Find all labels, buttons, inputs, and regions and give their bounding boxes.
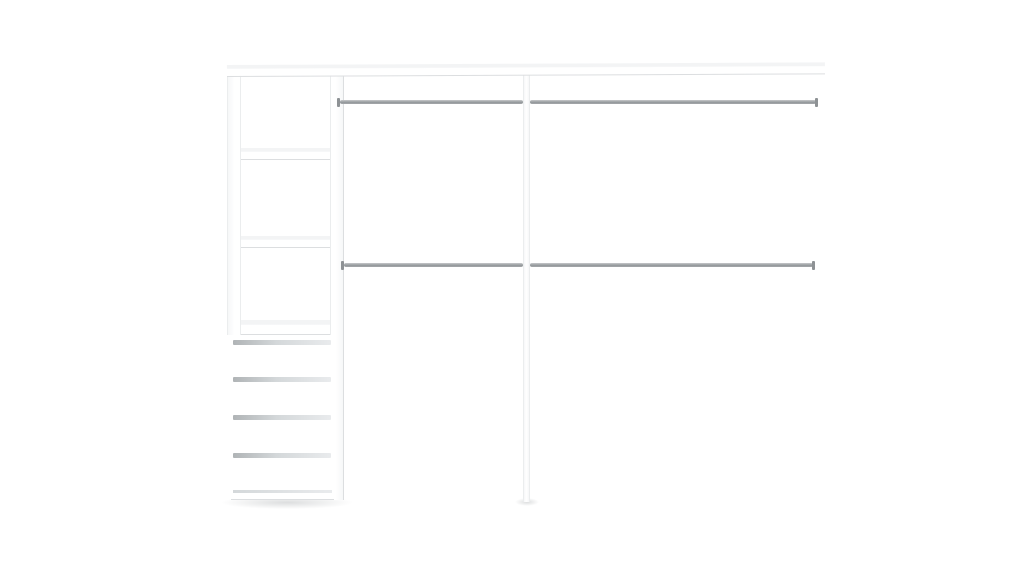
rod-end-cap-upper-right [815,98,818,107]
rod-end-cap-lower-right [812,261,815,270]
hanging-rod-upper-left-segment [340,100,523,104]
drawer-handle-groove-2 [233,377,331,382]
drawer-stack [231,335,334,490]
hanging-rod-lower-right-segment [530,263,813,267]
drawer-handle-groove-3 [233,415,331,420]
hanging-rod-lower-left-segment [344,263,523,267]
open-shelf-compartment-1 [241,77,330,148]
shelf-panel-2 [241,236,330,248]
top-shelf-panel [227,62,825,77]
open-shelf-compartment-2 [241,160,330,236]
drawer-front-4 [231,453,334,490]
drawer-front-1 [231,340,334,377]
drawer-front-2 [231,377,334,415]
shelf-panel-3 [241,320,330,335]
drawer-handle-groove-4 [233,453,331,458]
center-divider-panel [523,75,530,502]
rod-end-cap-upper-left [337,98,340,107]
rod-end-cap-lower-left [341,261,344,270]
product-image-canvas [0,0,1024,567]
hanging-rod-upper-right-segment [530,100,816,104]
toe-kick-panel [231,493,334,500]
open-shelf-compartment-3 [241,248,330,320]
shelf-panel-1 [241,148,330,160]
drawer-handle-groove-1 [233,340,331,345]
drawer-front-3 [231,415,334,453]
tower-left-side-panel [227,75,241,335]
